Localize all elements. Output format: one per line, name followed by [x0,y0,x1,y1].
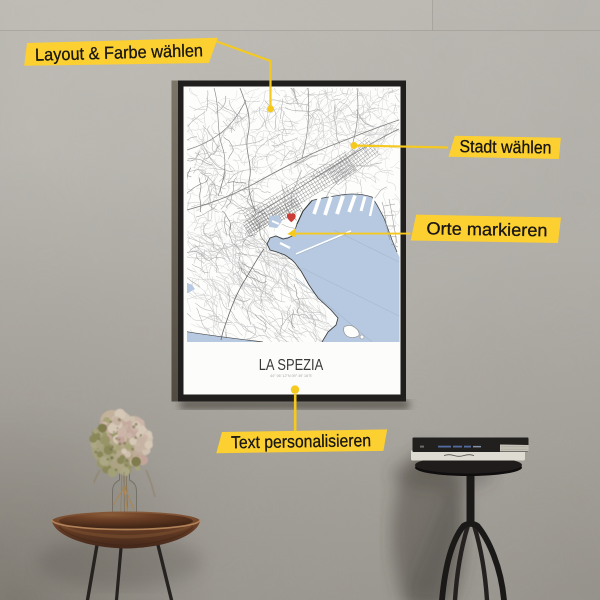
svg-text:Orte markieren: Orte markieren [426,218,547,240]
svg-text:Text personalisieren: Text personalisieren [231,430,371,452]
svg-text:LA SPEZIA: LA SPEZIA [259,357,324,374]
svg-text:Stadt wählen: Stadt wählen [459,136,551,157]
svg-text:44° 06' 12''N 09° 49' 16''E: 44° 06' 12''N 09° 49' 16''E [270,374,313,378]
